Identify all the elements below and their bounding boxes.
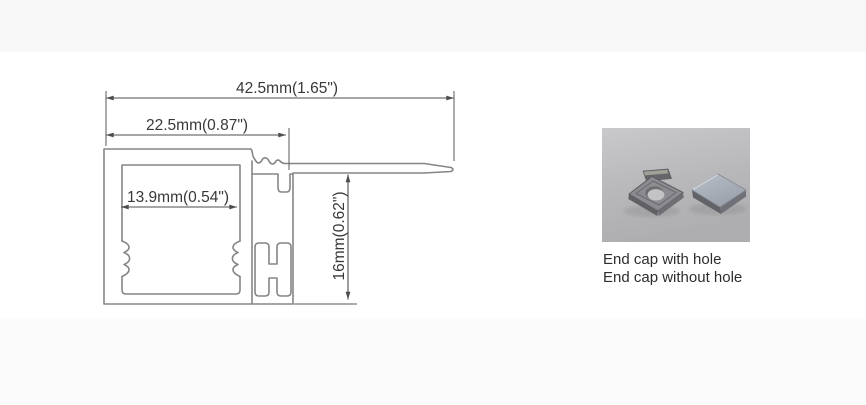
profile-led-channel — [122, 165, 240, 294]
led-profile-spec-figure: 42.5mm(1.65") 22.5mm(0.87") 13.9mm(0.54"… — [0, 0, 866, 405]
dim-label-body-width: 22.5mm(0.87") — [146, 117, 248, 134]
caption-end-cap-without-hole: End cap without hole — [603, 269, 742, 286]
profile-cross-section — [104, 149, 453, 304]
cap1-hole — [648, 189, 665, 200]
end-cap-photo — [602, 128, 750, 242]
dim-label-height: 16mm(0.62") — [331, 191, 348, 280]
caption-end-cap-with-hole: End cap with hole — [603, 251, 721, 268]
dim-label-overall-width: 42.5mm(1.65") — [236, 80, 338, 97]
dim-label-inner-width: 13.9mm(0.54") — [127, 189, 229, 206]
